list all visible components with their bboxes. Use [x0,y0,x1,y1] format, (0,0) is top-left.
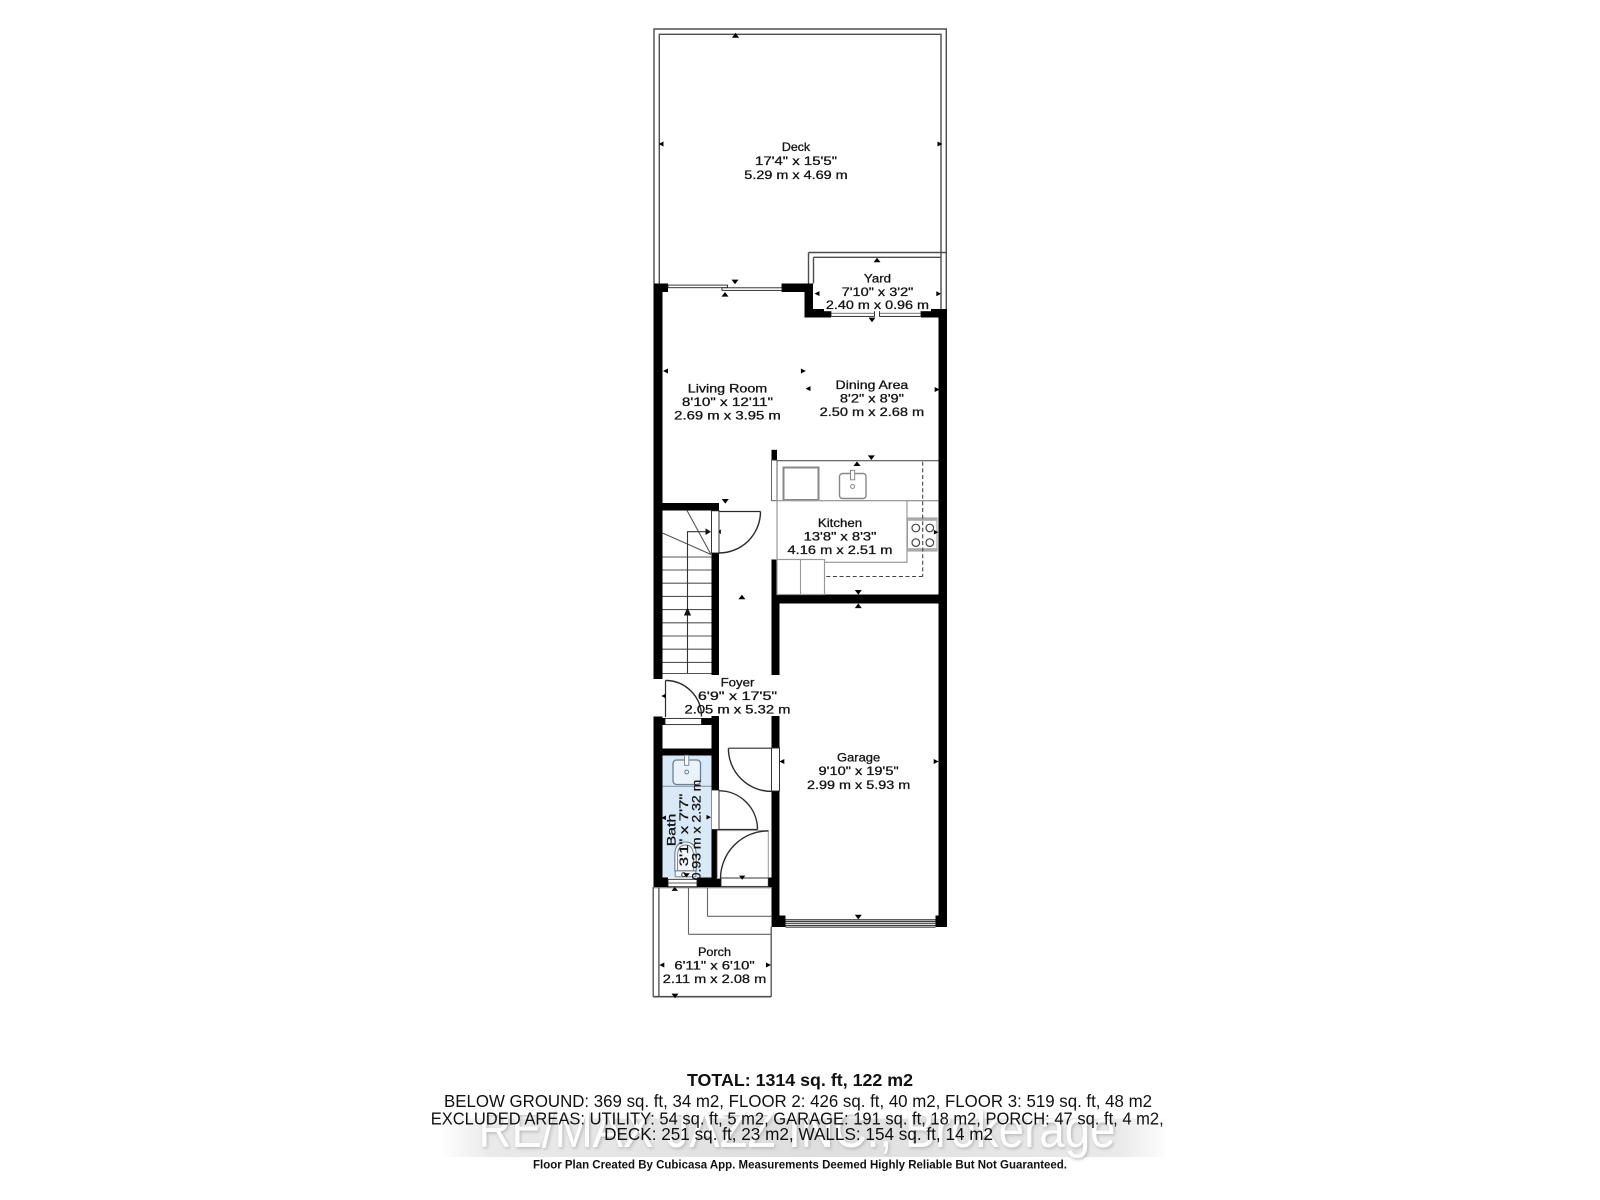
svg-text:2.05 m x 5.32 m: 2.05 m x 5.32 m [685,703,791,717]
svg-text:Dining Area: Dining Area [836,378,909,392]
svg-text:4.16 m x 2.51 m: 4.16 m x 2.51 m [788,543,893,557]
svg-text:17'4" x 15'5": 17'4" x 15'5" [755,154,837,168]
svg-text:8'2" x 8'9": 8'2" x 8'9" [840,392,904,406]
svg-text:Yard: Yard [864,272,891,286]
svg-text:Deck: Deck [782,140,811,154]
svg-text:Kitchen: Kitchen [818,516,862,530]
svg-text:0.93 m x 2.32 m: 0.93 m x 2.32 m [690,780,704,881]
svg-text:9'10" x 19'5": 9'10" x 19'5" [819,764,899,778]
svg-text:TOTAL: 1314 sq. ft, 122 m2: TOTAL: 1314 sq. ft, 122 m2 [687,1070,913,1090]
svg-text:Garage: Garage [837,751,881,765]
svg-text:DECK: 251 sq. ft, 23 m2, WALLS: DECK: 251 sq. ft, 23 m2, WALLS: 154 sq. … [604,1124,993,1144]
svg-text:13'8" x 8'3": 13'8" x 8'3" [804,529,877,543]
svg-text:2.69 m x 3.95 m: 2.69 m x 3.95 m [674,409,781,423]
svg-text:Floor Plan Created By Cubicasa: Floor Plan Created By Cubicasa App. Meas… [533,1157,1067,1171]
svg-text:7'10" x 3'2": 7'10" x 3'2" [842,285,914,299]
svg-text:Foyer: Foyer [721,675,755,689]
svg-text:6'9" x 17'5": 6'9" x 17'5" [698,689,777,703]
svg-text:2.50 m x 2.68 m: 2.50 m x 2.68 m [820,405,925,419]
svg-text:Porch: Porch [698,945,731,959]
svg-text:2.99 m x 5.93 m: 2.99 m x 5.93 m [807,778,910,792]
svg-text:2.11 m x 2.08 m: 2.11 m x 2.08 m [663,972,767,986]
svg-text:6'11" x 6'10": 6'11" x 6'10" [674,958,754,972]
svg-text:5.29 m x 4.69 m: 5.29 m x 4.69 m [744,168,847,182]
svg-text:Living Room: Living Room [688,381,767,395]
svg-text:2.40 m x 0.96 m: 2.40 m x 0.96 m [826,298,929,312]
svg-text:8'10" x 12'11": 8'10" x 12'11" [682,395,773,409]
